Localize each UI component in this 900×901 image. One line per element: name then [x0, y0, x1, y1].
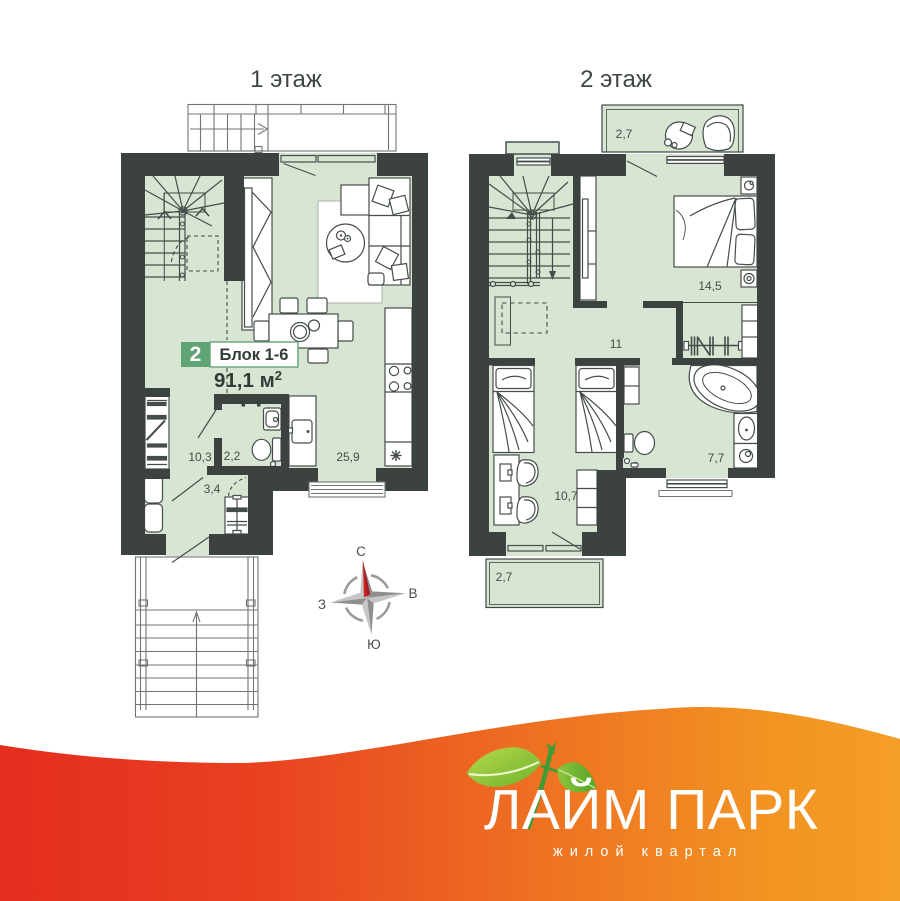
svg-text:В: В [408, 586, 417, 601]
svg-text:2 этаж: 2 этаж [580, 66, 652, 93]
svg-text:З: З [318, 597, 326, 612]
svg-text:С: С [356, 544, 366, 559]
svg-text:91,1 м2: 91,1 м2 [214, 368, 282, 392]
svg-text:ЛАЙМ ПАРК: ЛАЙМ ПАРК [484, 777, 818, 842]
svg-text:10,3: 10,3 [188, 450, 212, 464]
svg-text:Ю: Ю [367, 637, 381, 652]
svg-text:25,9: 25,9 [336, 450, 360, 464]
svg-text:2,2: 2,2 [224, 449, 241, 463]
svg-text:3,4: 3,4 [204, 482, 221, 496]
svg-text:10,7: 10,7 [554, 489, 578, 503]
svg-text:жилой квартал: жилой квартал [553, 844, 743, 860]
svg-text:2,7: 2,7 [496, 570, 513, 584]
svg-text:1 этаж: 1 этаж [250, 66, 322, 93]
svg-text:Блок 1-6: Блок 1-6 [220, 346, 289, 364]
svg-text:14,5: 14,5 [698, 279, 722, 293]
svg-text:2: 2 [190, 343, 202, 366]
svg-text:7,7: 7,7 [708, 451, 725, 465]
svg-text:11: 11 [610, 337, 623, 351]
svg-text:2,7: 2,7 [616, 127, 633, 141]
